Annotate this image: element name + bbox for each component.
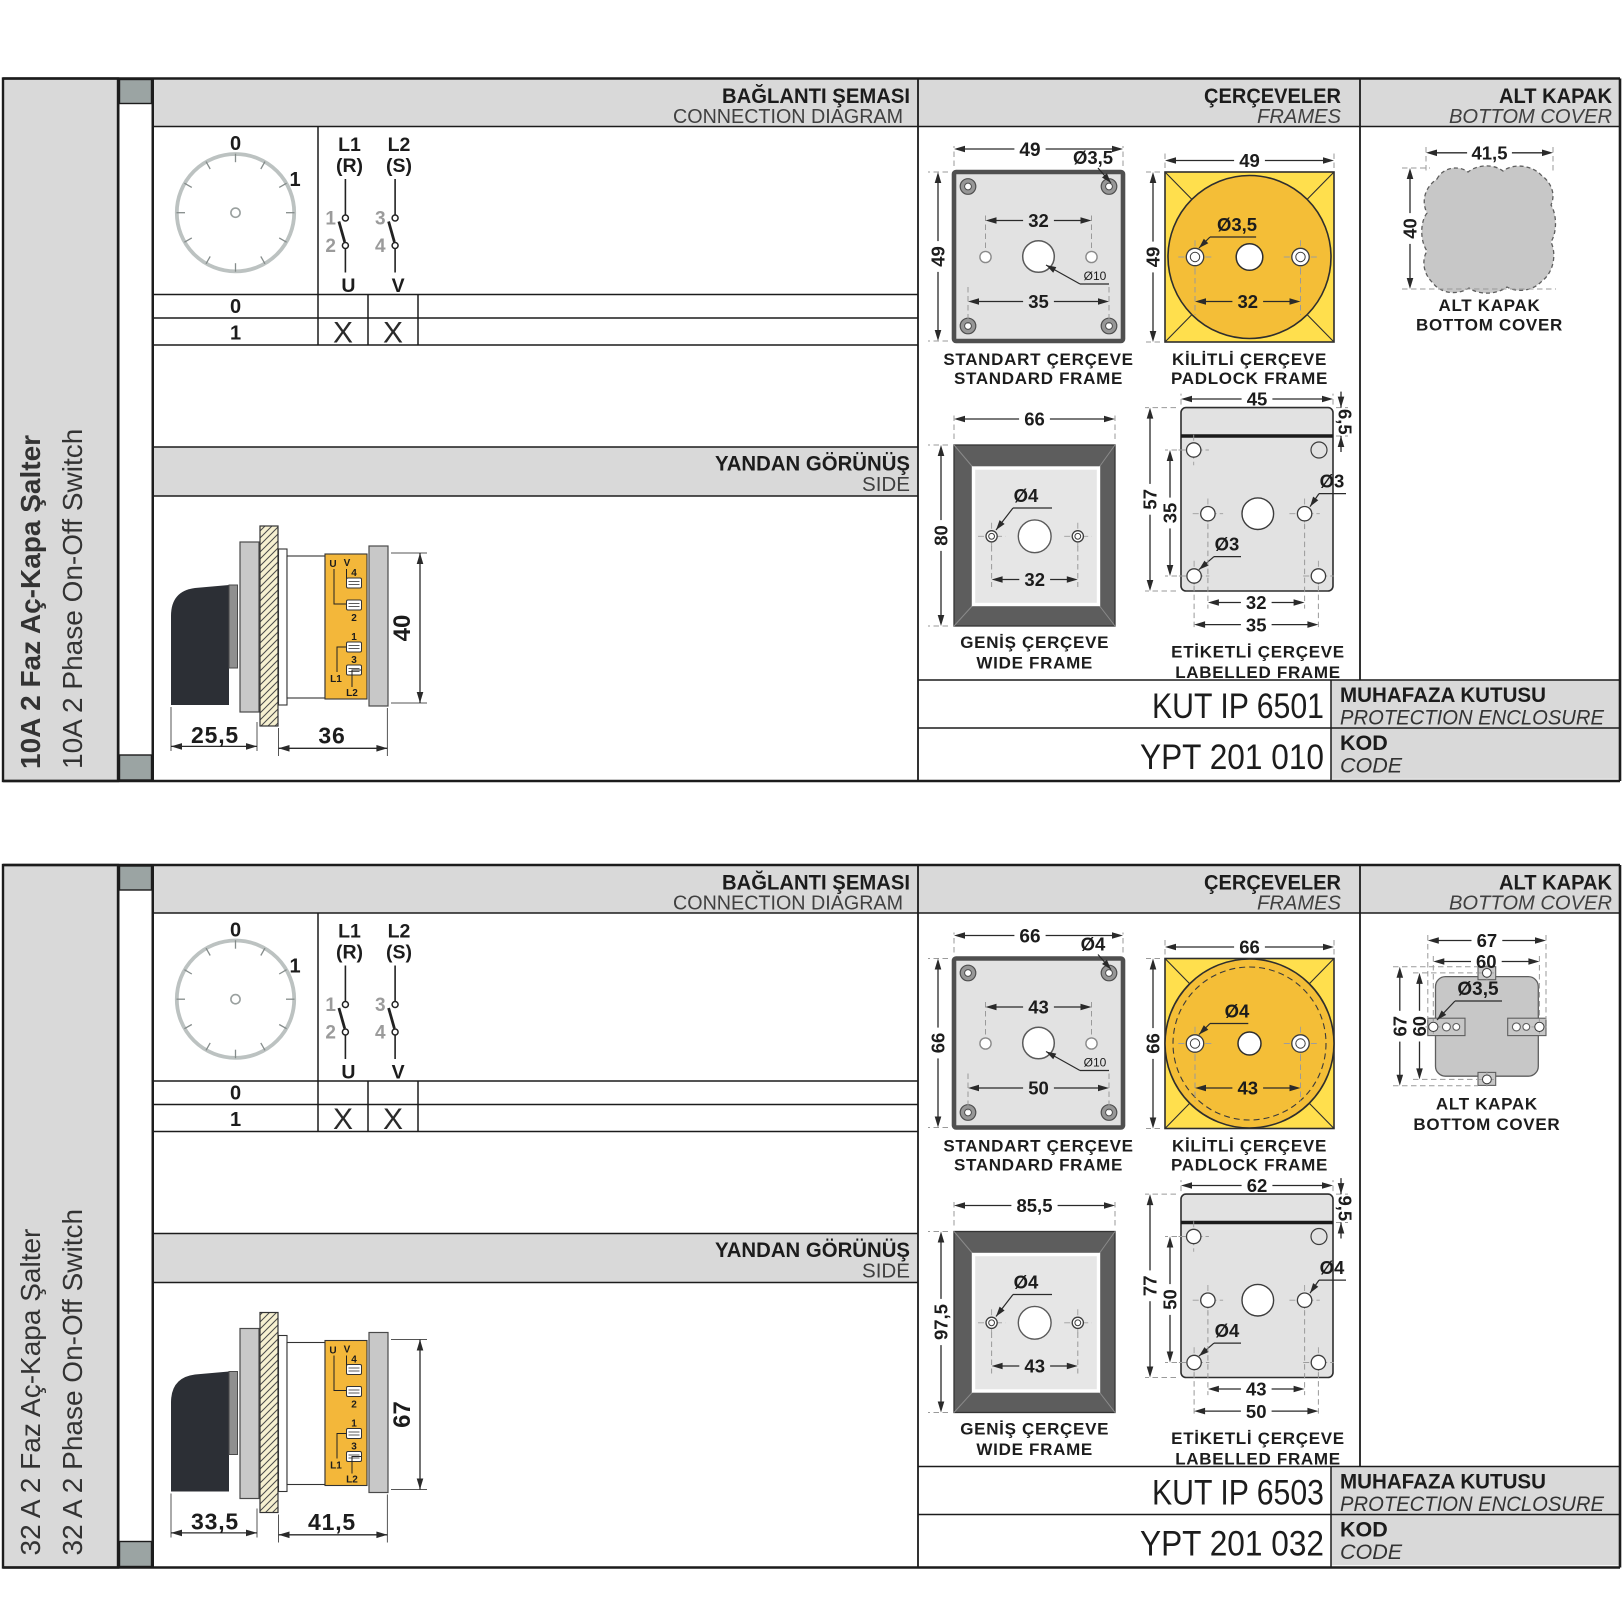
svg-text:V: V	[392, 1062, 405, 1084]
svg-text:SIDE: SIDE	[862, 474, 910, 496]
svg-text:L2: L2	[346, 688, 358, 699]
svg-text:0: 0	[230, 1083, 241, 1105]
svg-text:PROTECTION ENCLOSURE: PROTECTION ENCLOSURE	[1340, 1492, 1605, 1516]
svg-text:3: 3	[351, 1442, 357, 1453]
svg-text:32 A 2 Faz Aç-Kapa Şalter: 32 A 2 Faz Aç-Kapa Şalter	[15, 1229, 46, 1556]
svg-text:Ø3,5: Ø3,5	[1457, 979, 1499, 1000]
svg-text:9,5: 9,5	[1335, 1195, 1356, 1221]
svg-text:4: 4	[375, 1023, 386, 1044]
svg-text:BOTTOM COVER: BOTTOM COVER	[1413, 1115, 1560, 1134]
svg-text:36: 36	[318, 723, 345, 749]
svg-text:32: 32	[1024, 569, 1045, 590]
svg-text:BOTTOM COVER: BOTTOM COVER	[1416, 316, 1563, 335]
svg-text:1: 1	[289, 956, 300, 978]
svg-text:ALT KAPAK: ALT KAPAK	[1439, 296, 1541, 315]
svg-text:67: 67	[1477, 930, 1498, 951]
svg-text:57: 57	[1140, 489, 1161, 510]
svg-text:Ø4: Ø4	[1320, 1257, 1345, 1278]
svg-text:2: 2	[351, 613, 357, 624]
svg-text:32: 32	[1246, 592, 1267, 613]
svg-text:49: 49	[928, 246, 949, 267]
svg-text:66: 66	[1019, 926, 1040, 947]
svg-text:33,5: 33,5	[191, 1509, 239, 1535]
svg-text:2: 2	[351, 1400, 357, 1411]
svg-text:BAĞLANTI ŞEMASI: BAĞLANTI ŞEMASI	[722, 871, 910, 895]
svg-text:Ø3: Ø3	[1215, 534, 1240, 555]
svg-text:10A 2 Phase On-Off Switch: 10A 2 Phase On-Off Switch	[57, 429, 88, 769]
svg-text:60: 60	[1409, 1016, 1430, 1037]
svg-text:1: 1	[325, 995, 336, 1016]
svg-text:U: U	[329, 559, 336, 570]
svg-text:STANDART ÇERÇEVE: STANDART ÇERÇEVE	[943, 1137, 1133, 1156]
svg-text:YPT 201 010: YPT 201 010	[1140, 738, 1324, 777]
svg-text:PADLOCK FRAME: PADLOCK FRAME	[1171, 369, 1328, 388]
svg-text:32: 32	[1238, 291, 1259, 312]
svg-text:32 A 2 Phase On-Off Switch: 32 A 2 Phase On-Off Switch	[57, 1209, 88, 1556]
svg-text:KİLİTLİ ÇERÇEVE: KİLİTLİ ÇERÇEVE	[1172, 1137, 1327, 1156]
svg-text:41,5: 41,5	[308, 1509, 356, 1535]
svg-text:YPT 201 032: YPT 201 032	[1140, 1525, 1324, 1564]
svg-text:43: 43	[1246, 1379, 1267, 1400]
svg-text:35: 35	[1028, 291, 1049, 312]
svg-text:25,5: 25,5	[191, 722, 239, 748]
svg-text:WIDE FRAME: WIDE FRAME	[976, 1440, 1093, 1459]
svg-text:43: 43	[1238, 1078, 1259, 1099]
svg-text:L1: L1	[338, 921, 361, 943]
svg-text:62: 62	[1247, 1175, 1268, 1196]
svg-text:(S): (S)	[386, 942, 412, 964]
svg-text:FRAMES: FRAMES	[1257, 106, 1342, 128]
svg-text:STANDARD FRAME: STANDARD FRAME	[954, 369, 1123, 388]
svg-text:45: 45	[1247, 389, 1268, 410]
svg-text:LABELLED FRAME: LABELLED FRAME	[1175, 1450, 1341, 1469]
svg-text:STANDARD FRAME: STANDARD FRAME	[954, 1156, 1123, 1175]
svg-text:(R): (R)	[336, 942, 363, 964]
svg-text:85,5: 85,5	[1016, 1195, 1052, 1216]
svg-text:GENİŞ ÇERÇEVE: GENİŞ ÇERÇEVE	[960, 633, 1109, 652]
svg-text:MUHAFAZA KUTUSU: MUHAFAZA KUTUSU	[1340, 1470, 1546, 1494]
svg-text:ETİKETLİ ÇERÇEVE: ETİKETLİ ÇERÇEVE	[1171, 643, 1345, 662]
svg-text:41,5: 41,5	[1471, 143, 1507, 164]
svg-text:FRAMES: FRAMES	[1257, 893, 1342, 915]
svg-text:2: 2	[325, 236, 336, 257]
svg-text:3: 3	[375, 209, 386, 230]
svg-text:CONNECTION DIAGRAM: CONNECTION DIAGRAM	[673, 893, 903, 915]
svg-text:3: 3	[375, 995, 386, 1016]
svg-text:Ø3,5: Ø3,5	[1073, 147, 1113, 168]
svg-text:(R): (R)	[336, 155, 363, 177]
svg-text:50: 50	[1028, 1078, 1049, 1099]
svg-text:V: V	[344, 558, 351, 569]
svg-text:80: 80	[931, 525, 952, 546]
svg-text:6,5: 6,5	[1335, 409, 1356, 435]
svg-text:PROTECTION ENCLOSURE: PROTECTION ENCLOSURE	[1340, 706, 1605, 730]
svg-text:Ø4: Ø4	[1081, 934, 1106, 955]
svg-text:50: 50	[1160, 1289, 1181, 1310]
svg-text:GENİŞ ÇERÇEVE: GENİŞ ÇERÇEVE	[960, 1420, 1109, 1439]
svg-text:STANDART ÇERÇEVE: STANDART ÇERÇEVE	[943, 350, 1133, 369]
svg-text:MUHAFAZA KUTUSU: MUHAFAZA KUTUSU	[1340, 683, 1546, 707]
svg-text:ÇERÇEVELER: ÇERÇEVELER	[1204, 85, 1341, 108]
svg-text:1: 1	[230, 323, 241, 345]
svg-text:3: 3	[351, 655, 357, 666]
svg-text:V: V	[344, 1345, 351, 1356]
svg-text:PADLOCK FRAME: PADLOCK FRAME	[1171, 1156, 1328, 1175]
svg-text:KOD: KOD	[1340, 1518, 1388, 1542]
svg-text:49: 49	[1143, 247, 1164, 268]
svg-text:67: 67	[1390, 1016, 1411, 1037]
svg-text:BOTTOM COVER: BOTTOM COVER	[1449, 893, 1612, 915]
svg-text:L1: L1	[330, 674, 342, 685]
svg-text:32: 32	[1028, 210, 1049, 231]
svg-text:66: 66	[1024, 409, 1045, 430]
svg-text:WIDE FRAME: WIDE FRAME	[976, 654, 1093, 673]
svg-text:CONNECTION DIAGRAM: CONNECTION DIAGRAM	[673, 106, 903, 128]
svg-text:66: 66	[1239, 937, 1260, 958]
svg-text:U: U	[341, 1062, 355, 1084]
svg-text:Ø3,5: Ø3,5	[1217, 214, 1257, 235]
svg-text:X: X	[383, 317, 403, 350]
svg-text:Ø10: Ø10	[1084, 269, 1107, 283]
svg-text:4: 4	[351, 568, 357, 579]
svg-text:BOTTOM COVER: BOTTOM COVER	[1449, 106, 1612, 128]
svg-text:YANDAN GÖRÜNÜŞ: YANDAN GÖRÜNÜŞ	[715, 453, 910, 476]
svg-text:Ø4: Ø4	[1014, 1272, 1039, 1293]
svg-text:ALT KAPAK: ALT KAPAK	[1499, 872, 1612, 895]
svg-text:67: 67	[389, 1401, 416, 1428]
svg-text:KOD: KOD	[1340, 731, 1388, 755]
svg-text:ALT KAPAK: ALT KAPAK	[1499, 85, 1612, 108]
svg-text:0: 0	[230, 296, 241, 318]
svg-text:4: 4	[375, 236, 386, 257]
svg-text:40: 40	[1400, 218, 1421, 239]
svg-text:ALT KAPAK: ALT KAPAK	[1436, 1095, 1538, 1114]
svg-text:1: 1	[325, 209, 336, 230]
svg-text:1: 1	[230, 1109, 241, 1131]
svg-text:YANDAN GÖRÜNÜŞ: YANDAN GÖRÜNÜŞ	[715, 1239, 910, 1262]
svg-text:1: 1	[289, 169, 300, 191]
svg-text:Ø10: Ø10	[1084, 1056, 1107, 1070]
svg-text:50: 50	[1246, 1401, 1267, 1422]
svg-text:10A 2 Faz Aç-Kapa Şalter: 10A 2 Faz Aç-Kapa Şalter	[15, 435, 46, 769]
svg-text:BAĞLANTI ŞEMASI: BAĞLANTI ŞEMASI	[722, 84, 910, 108]
svg-text:KİLİTLİ ÇERÇEVE: KİLİTLİ ÇERÇEVE	[1172, 350, 1327, 369]
svg-text:Ø4: Ø4	[1215, 1320, 1240, 1341]
svg-text:97,5: 97,5	[931, 1304, 952, 1340]
svg-text:L2: L2	[388, 921, 411, 943]
svg-text:X: X	[383, 1103, 403, 1136]
svg-text:1: 1	[351, 632, 357, 643]
svg-text:ETİKETLİ ÇERÇEVE: ETİKETLİ ÇERÇEVE	[1171, 1429, 1345, 1448]
svg-text:49: 49	[1239, 150, 1260, 171]
svg-text:U: U	[329, 1346, 336, 1357]
svg-text:66: 66	[1143, 1033, 1164, 1054]
svg-text:Ø4: Ø4	[1225, 1001, 1250, 1022]
svg-text:49: 49	[1019, 140, 1040, 161]
svg-text:4: 4	[351, 1355, 357, 1366]
svg-text:X: X	[333, 1103, 353, 1136]
svg-text:L2: L2	[388, 134, 411, 156]
svg-text:KUT IP 6503: KUT IP 6503	[1152, 1474, 1324, 1513]
svg-text:SIDE: SIDE	[862, 1261, 910, 1283]
svg-text:77: 77	[1140, 1276, 1161, 1297]
svg-text:40: 40	[389, 615, 416, 642]
svg-text:CODE: CODE	[1340, 1540, 1403, 1564]
svg-text:60: 60	[1476, 951, 1497, 972]
svg-text:0: 0	[230, 133, 241, 155]
svg-text:2: 2	[325, 1023, 336, 1044]
svg-text:X: X	[333, 317, 353, 350]
svg-text:(S): (S)	[386, 155, 412, 177]
svg-text:L1: L1	[330, 1461, 342, 1472]
svg-text:Ø3: Ø3	[1320, 471, 1345, 492]
svg-text:CODE: CODE	[1340, 754, 1403, 778]
svg-text:KUT IP 6501: KUT IP 6501	[1152, 687, 1324, 726]
svg-text:LABELLED FRAME: LABELLED FRAME	[1175, 663, 1341, 682]
svg-text:L1: L1	[338, 134, 361, 156]
svg-text:0: 0	[230, 920, 241, 942]
svg-text:1: 1	[351, 1419, 357, 1430]
svg-text:35: 35	[1246, 614, 1267, 635]
svg-text:35: 35	[1160, 503, 1181, 524]
svg-text:U: U	[341, 275, 355, 297]
svg-text:L2: L2	[346, 1475, 358, 1486]
svg-text:66: 66	[928, 1033, 949, 1054]
svg-text:43: 43	[1028, 997, 1049, 1018]
svg-text:ÇERÇEVELER: ÇERÇEVELER	[1204, 872, 1341, 895]
svg-text:43: 43	[1024, 1356, 1045, 1377]
svg-text:V: V	[392, 275, 405, 297]
svg-text:Ø4: Ø4	[1014, 485, 1039, 506]
